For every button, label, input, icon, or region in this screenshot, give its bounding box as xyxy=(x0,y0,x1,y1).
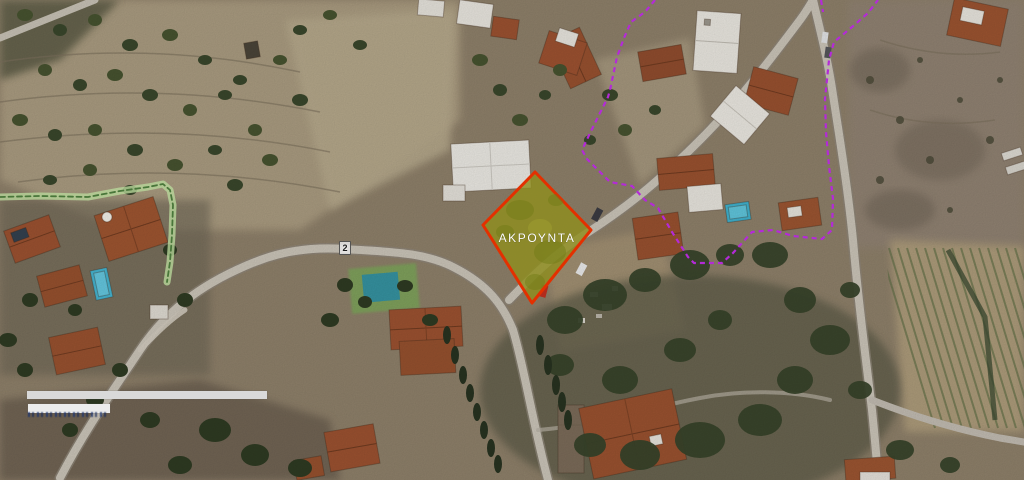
satellite-map[interactable]: ΑΚΡΟΥΝΤΑ 2 xyxy=(0,0,1024,480)
road-number-label: 2 xyxy=(342,244,347,253)
parcel-label: ΑΚΡΟΥΝΤΑ xyxy=(499,231,576,245)
road-number-marker: 2 xyxy=(339,241,351,255)
map-overlays: ΑΚΡΟΥΝΤΑ xyxy=(0,0,1024,480)
green-boundary-line xyxy=(0,184,173,282)
highlighted-parcel[interactable]: ΑΚΡΟΥΝΤΑ xyxy=(483,172,591,303)
scale-bar-primary xyxy=(27,391,267,399)
scale-caption-illegible xyxy=(28,412,108,417)
cadastral-boundary-line xyxy=(582,0,878,263)
